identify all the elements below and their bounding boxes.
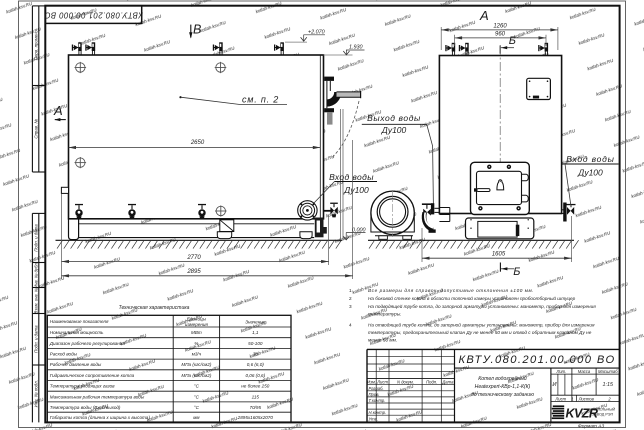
svg-text:Лист: Лист <box>376 379 388 384</box>
svg-text:Формат А3: Формат А3 <box>578 424 605 430</box>
svg-text:измерения: измерения <box>185 322 209 327</box>
svg-text:Листов: Листов <box>578 396 595 401</box>
svg-text:Н.контр.: Н.контр. <box>369 410 387 415</box>
svg-text:Выход воды: Выход воды <box>367 113 421 123</box>
svg-text:На отводящей трубе котла, до з: На отводящей трубе котла, до запорной ар… <box>368 321 595 327</box>
svg-text:Инв. № подл.: Инв. № подл. <box>33 380 38 407</box>
svg-text:Справ. №: Справ. № <box>33 118 38 138</box>
svg-text:по техническому заданию: по техническому заданию <box>471 392 534 398</box>
svg-text:В: В <box>193 23 201 37</box>
svg-text:Габариты котла (длинна х ширин: Габариты котла (длинна х ширина х высота… <box>50 415 151 420</box>
svg-text:Ду100: Ду100 <box>577 167 603 177</box>
svg-text:2650: 2650 <box>190 140 205 146</box>
svg-text:1260: 1260 <box>493 23 507 29</box>
svg-text:см. п. 2: см. п. 2 <box>242 95 279 105</box>
svg-text:На подводящей трубе котла, д: На подводящей трубе котла, до запорной а… <box>368 303 596 309</box>
svg-text:температуры, предохранительный: температуры, предохранительный клапан Ду… <box>368 329 592 335</box>
svg-text:Перв. примен.: Перв. примен. <box>33 31 38 60</box>
svg-text:4: 4 <box>349 322 352 327</box>
svg-text:0,06 (0,6): 0,06 (0,6) <box>245 373 265 378</box>
svg-text:Инв. № дубл.: Инв. № дубл. <box>33 262 38 288</box>
svg-text:1,1: 1,1 <box>252 330 259 335</box>
svg-text:А: А <box>479 8 489 23</box>
svg-text:Рабочее давление воды: Рабочее давление воды <box>50 362 102 367</box>
svg-text:°С: °С <box>194 405 200 410</box>
svg-text:Диапазон рабочего регулировани: Диапазон рабочего регулирования <box>49 341 126 346</box>
svg-text:°С: °С <box>194 384 200 389</box>
svg-text:МПа (кгс/см2): МПа (кгс/см2) <box>181 373 211 378</box>
svg-text:%: % <box>194 341 198 346</box>
svg-text:КВТУ.080.201.00.000 ВО: КВТУ.080.201.00.000 ВО <box>458 354 615 366</box>
svg-text:Максимальная рабочая температу: Максимальная рабочая температура воды <box>50 394 145 399</box>
svg-text:Наименование показателя: Наименование показателя <box>50 319 109 324</box>
svg-text:1: 1 <box>571 396 573 401</box>
svg-text:Значение: Значение <box>245 319 266 324</box>
svg-text:N докум.: N докум. <box>397 379 414 384</box>
svg-text:Техническая характеристика: Техническая характеристика <box>119 305 190 311</box>
svg-text:3: 3 <box>349 304 352 309</box>
svg-text:м3/ч: м3/ч <box>192 352 202 357</box>
svg-text:Т.контр.: Т.контр. <box>369 398 386 403</box>
svg-text:Подп. и дата: Подп. и дата <box>33 224 38 252</box>
svg-text:Heatexpert-КВр-1,1-К(К): Heatexpert-КВр-1,1-К(К) <box>475 384 531 390</box>
svg-text:МВт: МВт <box>191 330 202 335</box>
svg-text:Б: Б <box>509 35 516 47</box>
svg-text:Подп. и дата: Подп. и дата <box>33 325 38 353</box>
svg-text:115: 115 <box>252 394 260 399</box>
svg-text:Взам. инв. №: Взам. инв. № <box>33 287 38 313</box>
svg-text:На боковой стенке котла в обла: На боковой стенке котла в области топочн… <box>368 295 576 301</box>
svg-text:Утв.: Утв. <box>369 416 379 421</box>
svg-text:Вход воды: Вход воды <box>329 172 374 182</box>
svg-text:Единицы: Единицы <box>187 317 207 322</box>
svg-text:Ду100: Ду100 <box>381 125 407 135</box>
svg-text:2895: 2895 <box>186 269 201 275</box>
svg-text:мм: мм <box>193 415 200 420</box>
svg-text:МПа (кгс/см2): МПа (кгс/см2) <box>181 362 211 367</box>
svg-text:0,6 (6,0): 0,6 (6,0) <box>247 362 265 367</box>
svg-text:ЗАВОД РЭП: ЗАВОД РЭП <box>592 413 613 417</box>
svg-text:КВТУ.080.201.00.000 ВО: КВТУ.080.201.00.000 ВО <box>44 11 143 20</box>
svg-text:А: А <box>53 103 63 118</box>
svg-text:Лист: Лист <box>554 396 566 401</box>
svg-text:1: 1 <box>349 288 352 293</box>
svg-text:Подп.: Подп. <box>426 379 437 384</box>
svg-text:Изм.: Изм. <box>367 379 376 384</box>
svg-text:2: 2 <box>349 296 352 301</box>
svg-text:Гидравлическое сопротивление к: Гидравлическое сопротивление котла <box>50 373 135 378</box>
svg-text:Температура воды (Вход/выход): Температура воды (Вход/выход) <box>50 405 121 410</box>
svg-text:Масштаб: Масштаб <box>598 369 618 374</box>
svg-text:70/95: 70/95 <box>250 405 262 410</box>
svg-text:Ду100: Ду100 <box>343 185 369 195</box>
svg-text:°С: °С <box>194 394 200 399</box>
svg-text:Расход воды: Расход воды <box>50 352 78 357</box>
svg-text:38: 38 <box>253 352 259 357</box>
svg-text:Вход воды: Вход воды <box>566 154 614 164</box>
svg-text:1605: 1605 <box>492 252 506 258</box>
svg-text:менее 50 мм.: менее 50 мм. <box>368 338 397 343</box>
svg-text:2770: 2770 <box>186 255 201 261</box>
svg-text:не более 250: не более 250 <box>241 384 269 389</box>
svg-text:Разраб.: Разраб. <box>369 386 384 391</box>
svg-text:Котел водогрейный: Котел водогрейный <box>478 375 527 382</box>
svg-text:Б: Б <box>513 266 520 278</box>
svg-text:Пров.: Пров. <box>369 392 380 397</box>
svg-text:Масса: Масса <box>578 369 591 374</box>
svg-text:1:15: 1:15 <box>603 382 614 388</box>
svg-text:2895х1605х2070: 2895х1605х2070 <box>237 415 274 420</box>
svg-text:КОТЕЛЬНЫЙ: КОТЕЛЬНЫЙ <box>592 407 615 411</box>
svg-text:960: 960 <box>495 32 506 38</box>
svg-text:50-100: 50-100 <box>248 341 263 346</box>
svg-text:Лит.: Лит. <box>555 369 566 374</box>
svg-text:Дата: Дата <box>441 379 454 384</box>
svg-text:температуры.: температуры. <box>368 312 402 317</box>
svg-text:Все размеры для справок, допус: Все размеры для справок, допустимые откл… <box>368 288 534 293</box>
svg-text:Температура уходящих газов: Температура уходящих газов <box>50 384 115 389</box>
svg-text:Номинальная мощность: Номинальная мощность <box>50 330 104 335</box>
